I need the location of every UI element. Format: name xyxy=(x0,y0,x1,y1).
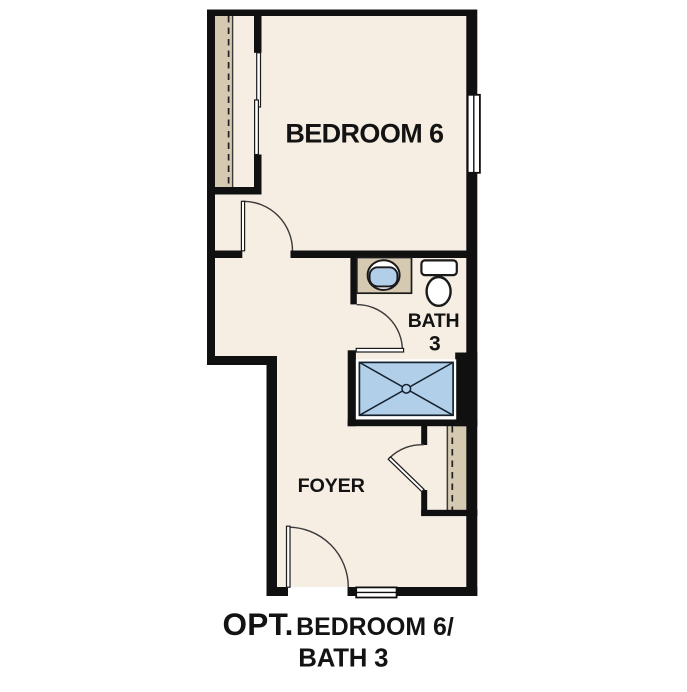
svg-text:BATH 3: BATH 3 xyxy=(298,645,388,673)
svg-text:BATH: BATH xyxy=(408,310,460,332)
svg-text:FOYER: FOYER xyxy=(298,475,365,497)
svg-text:3: 3 xyxy=(429,332,441,355)
svg-text:BEDROOM 6: BEDROOM 6 xyxy=(285,119,444,149)
